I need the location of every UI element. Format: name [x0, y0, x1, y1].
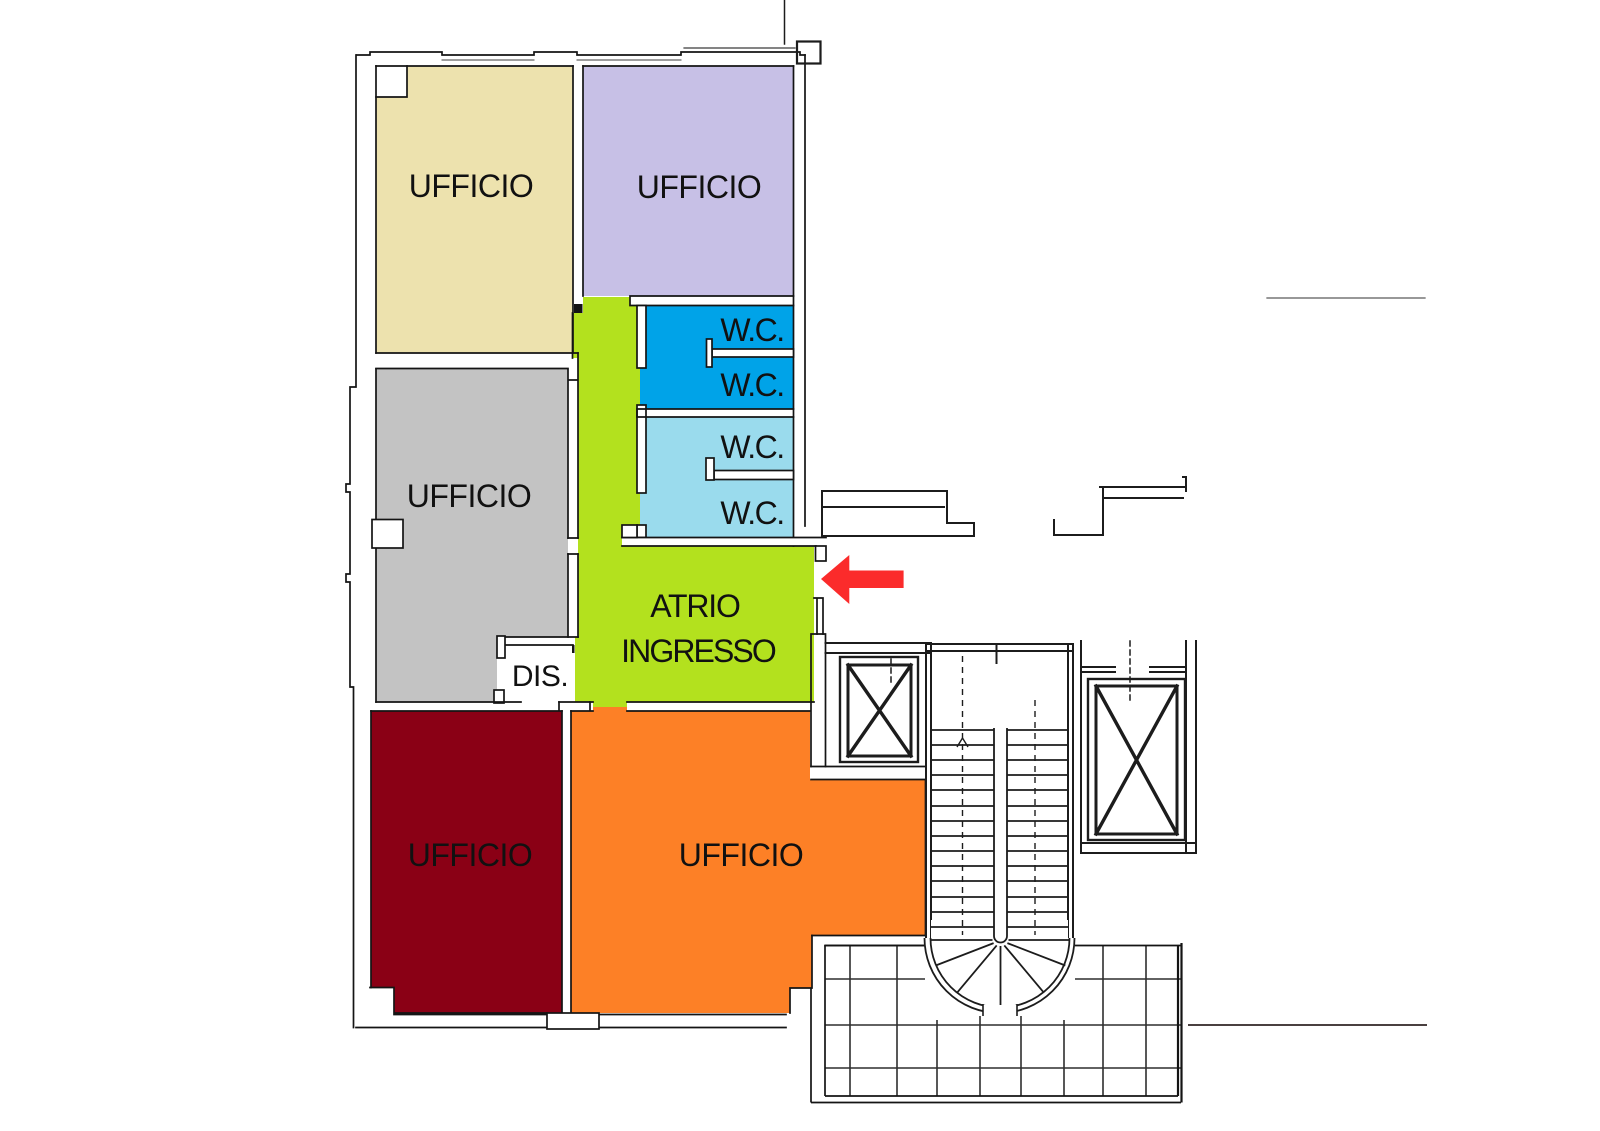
svg-text:W.C.: W.C.	[720, 312, 783, 348]
svg-text:UFFICIO: UFFICIO	[407, 478, 531, 514]
svg-text:UFFICIO: UFFICIO	[408, 837, 532, 873]
svg-text:DIS.: DIS.	[512, 660, 568, 693]
svg-text:INGRESSO: INGRESSO	[621, 633, 776, 669]
svg-text:UFFICIO: UFFICIO	[409, 168, 533, 204]
svg-text:ATRIO: ATRIO	[650, 588, 740, 624]
svg-text:W.C.: W.C.	[720, 367, 783, 403]
svg-text:W.C.: W.C.	[720, 429, 783, 465]
svg-text:UFFICIO: UFFICIO	[637, 169, 761, 205]
svg-text:UFFICIO: UFFICIO	[679, 837, 803, 873]
svg-text:W.C.: W.C.	[720, 495, 783, 531]
